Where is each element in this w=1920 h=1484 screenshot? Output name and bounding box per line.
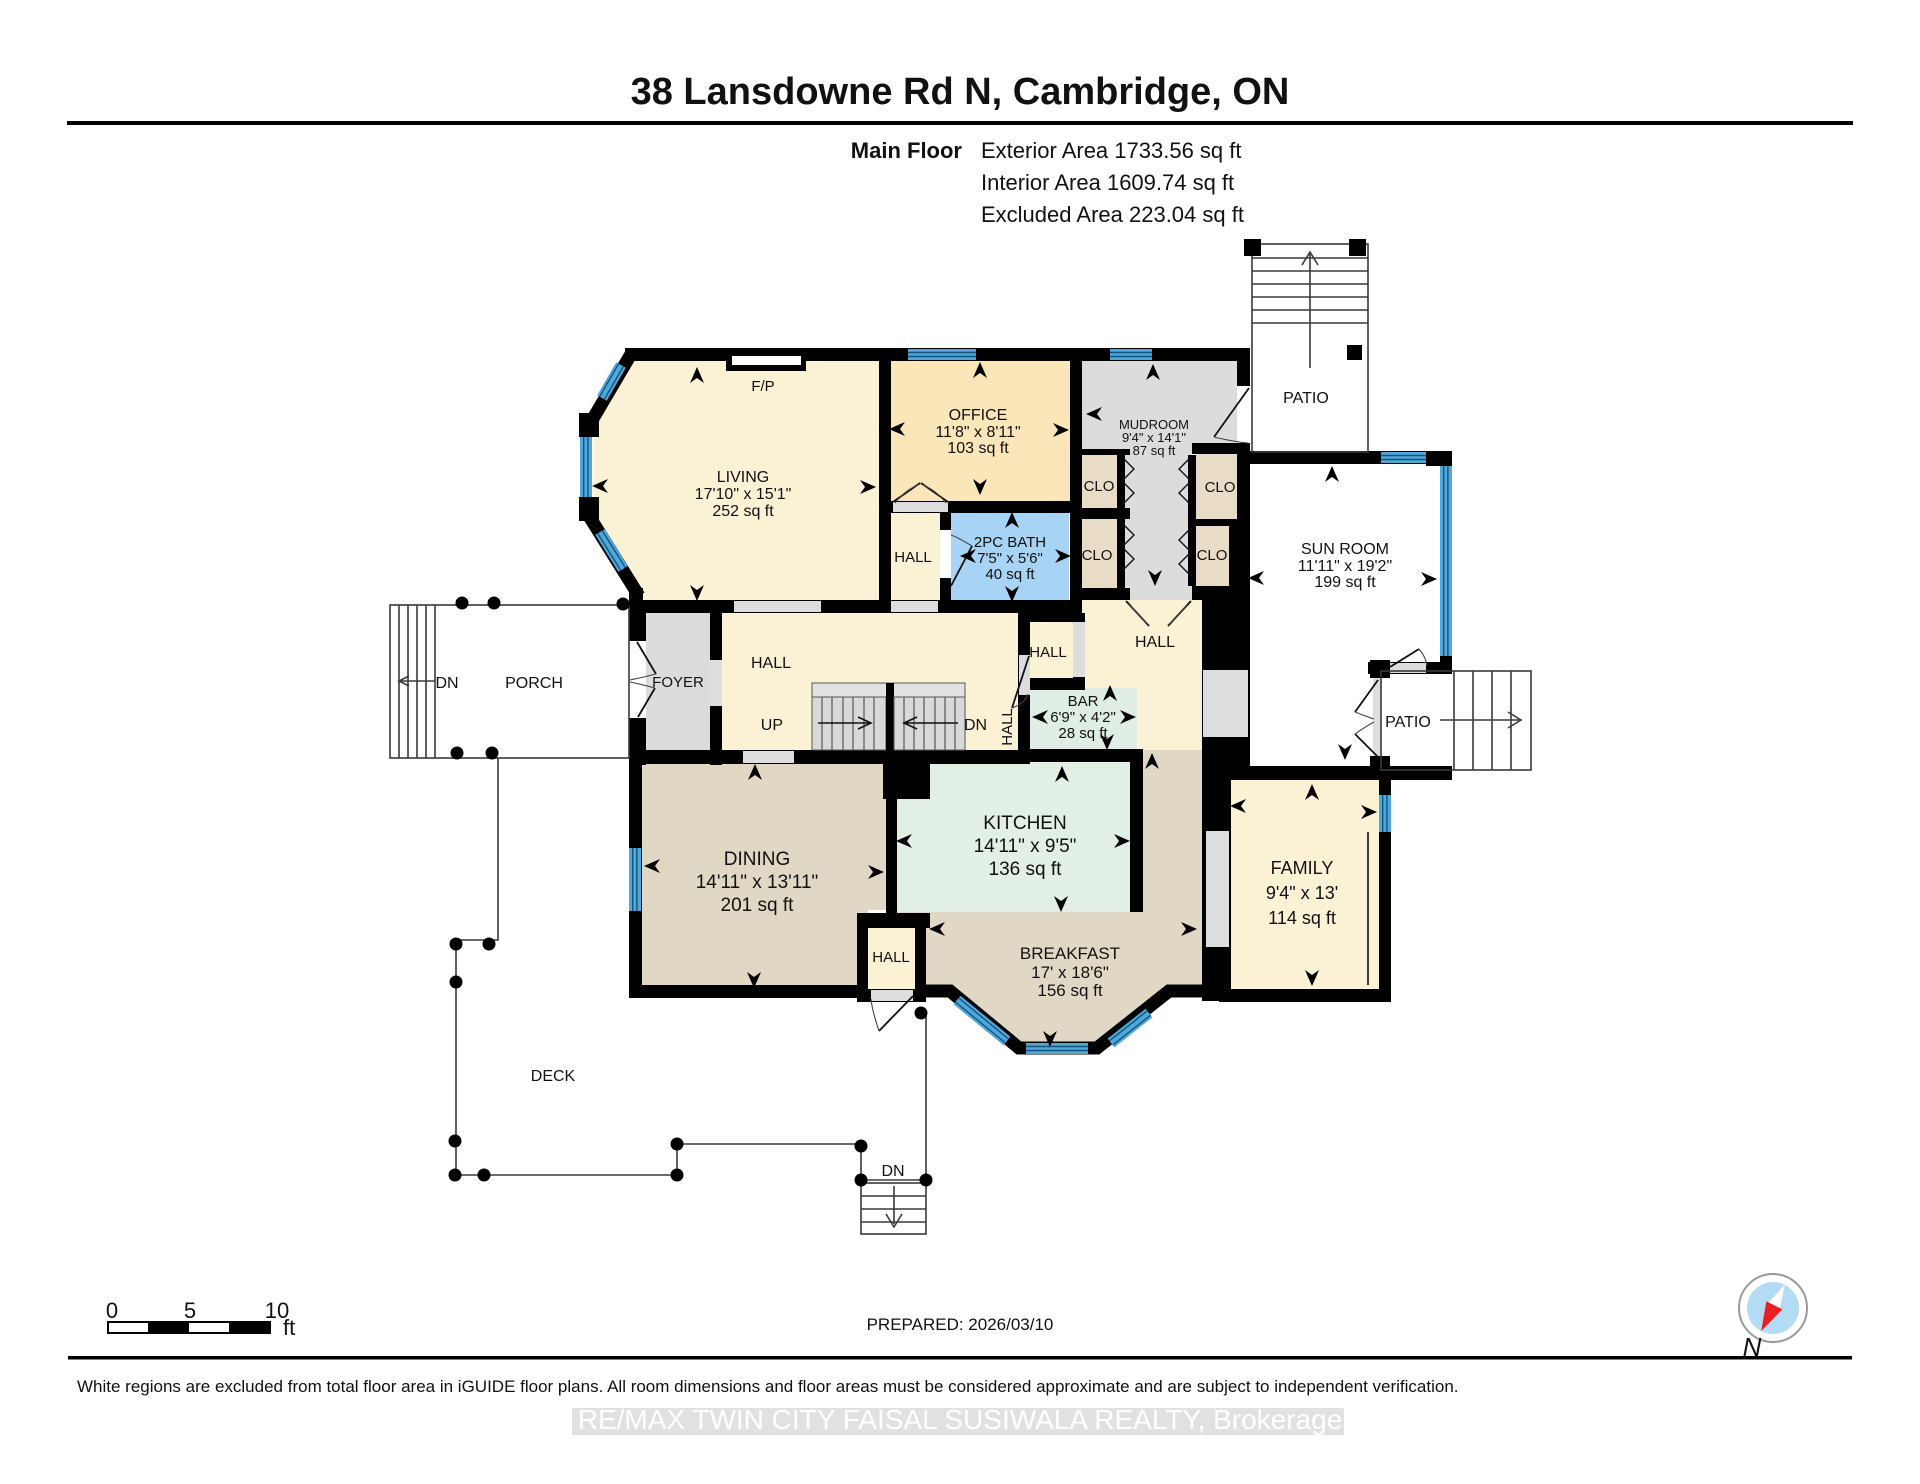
- svg-text:HALL: HALL: [1135, 634, 1175, 651]
- svg-text:5: 5: [184, 1298, 196, 1323]
- svg-text:CLO: CLO: [1205, 479, 1236, 496]
- svg-text:DINING: DINING: [724, 849, 791, 870]
- svg-text:KITCHEN: KITCHEN: [983, 813, 1066, 834]
- svg-text:252 sq ft: 252 sq ft: [712, 503, 774, 520]
- svg-text:HALL: HALL: [894, 549, 932, 566]
- svg-text:199 sq ft: 199 sq ft: [1314, 574, 1376, 591]
- svg-text:Main Floor: Main Floor: [851, 138, 963, 163]
- svg-text:Interior Area 1609.74 sq ft: Interior Area 1609.74 sq ft: [981, 170, 1234, 195]
- svg-text:ft: ft: [283, 1315, 295, 1340]
- svg-text:114 sq ft: 114 sq ft: [1268, 908, 1336, 928]
- svg-text:LIVING: LIVING: [717, 469, 769, 486]
- svg-text:UP: UP: [761, 717, 783, 734]
- svg-text:11'11" x 19'2": 11'11" x 19'2": [1298, 558, 1392, 575]
- svg-text:DN: DN: [881, 1163, 904, 1180]
- svg-text:Excluded Area 223.04 sq ft: Excluded Area 223.04 sq ft: [981, 202, 1244, 227]
- svg-text:F/P: F/P: [751, 378, 774, 395]
- svg-text:PORCH: PORCH: [505, 675, 563, 692]
- svg-text:156 sq ft: 156 sq ft: [1037, 981, 1102, 1000]
- svg-text:PATIO: PATIO: [1283, 390, 1329, 407]
- svg-text:PREPARED: 2026/03/10: PREPARED: 2026/03/10: [867, 1315, 1054, 1334]
- svg-text:17'10" x 15'1": 17'10" x 15'1": [695, 486, 792, 503]
- svg-text:7'5" x 5'6": 7'5" x 5'6": [977, 550, 1043, 567]
- svg-text:103 sq ft: 103 sq ft: [947, 440, 1009, 457]
- svg-text:BAR: BAR: [1068, 693, 1099, 710]
- svg-text:14'11" x 9'5": 14'11" x 9'5": [974, 836, 1077, 857]
- svg-text:CLO: CLO: [1084, 478, 1115, 495]
- svg-text:White regions are excluded fro: White regions are excluded from total fl…: [77, 1377, 1459, 1396]
- svg-text:17' x 18'6": 17' x 18'6": [1031, 963, 1109, 982]
- svg-text:HALL: HALL: [999, 708, 1016, 746]
- svg-text:OFFICE: OFFICE: [949, 407, 1008, 424]
- svg-text:FOYER: FOYER: [652, 674, 704, 691]
- svg-text:DN: DN: [964, 717, 987, 734]
- svg-text:28 sq ft: 28 sq ft: [1058, 725, 1108, 742]
- svg-text:Exterior Area 1733.56 sq ft: Exterior Area 1733.56 sq ft: [981, 138, 1242, 163]
- svg-text:136 sq ft: 136 sq ft: [989, 859, 1063, 880]
- svg-text:HALL: HALL: [872, 949, 910, 966]
- svg-text:0: 0: [106, 1298, 118, 1323]
- svg-text:2PC BATH: 2PC BATH: [974, 534, 1046, 551]
- svg-text:HALL: HALL: [1029, 644, 1067, 661]
- svg-text:14'11" x 13'11": 14'11" x 13'11": [696, 872, 819, 893]
- svg-text:CLO: CLO: [1082, 547, 1113, 564]
- svg-text:FAMILY: FAMILY: [1271, 858, 1334, 878]
- svg-text:PATIO: PATIO: [1385, 714, 1431, 731]
- svg-text:11'8" x 8'11": 11'8" x 8'11": [935, 424, 1020, 441]
- svg-text:HALL: HALL: [751, 655, 791, 672]
- svg-text:SUN ROOM: SUN ROOM: [1301, 541, 1389, 558]
- svg-text:40 sq ft: 40 sq ft: [985, 566, 1035, 583]
- svg-text:87 sq ft: 87 sq ft: [1133, 443, 1176, 458]
- svg-text:38 Lansdowne Rd N, Cambridge,: 38 Lansdowne Rd N, Cambridge, ON: [631, 71, 1290, 113]
- svg-text:6'9" x 4'2": 6'9" x 4'2": [1050, 709, 1116, 726]
- svg-text:BREAKFAST: BREAKFAST: [1020, 944, 1120, 963]
- svg-text:CLO: CLO: [1197, 547, 1228, 564]
- svg-text:RE/MAX TWIN CITY FAISAL SUSIWA: RE/MAX TWIN CITY FAISAL SUSIWALA REALTY,…: [578, 1404, 1343, 1435]
- svg-text:9'4" x 13': 9'4" x 13': [1266, 883, 1338, 903]
- svg-text:DN: DN: [435, 675, 458, 692]
- svg-text:DECK: DECK: [531, 1068, 576, 1085]
- svg-text:201 sq ft: 201 sq ft: [721, 895, 795, 916]
